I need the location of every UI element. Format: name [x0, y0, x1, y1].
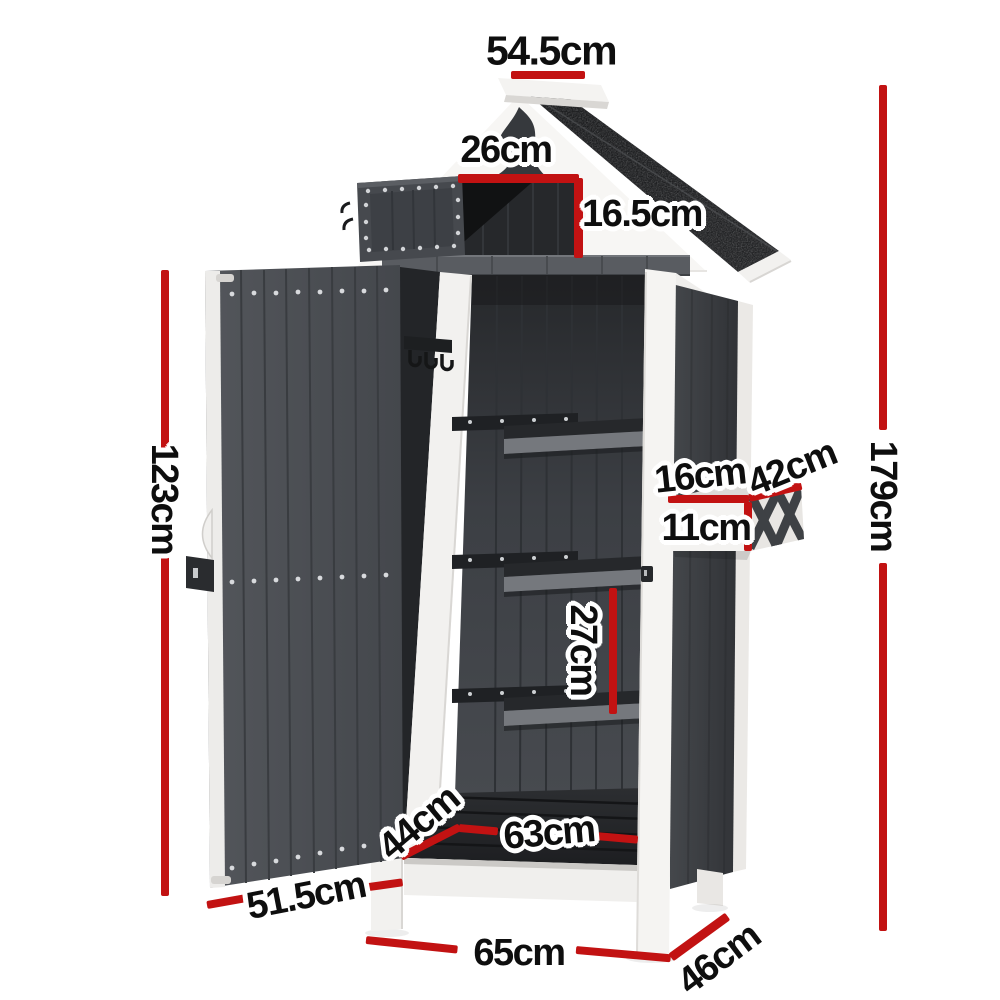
- dim-line-door-height-upper: [161, 270, 169, 452]
- dim-line-hatch-width: [458, 174, 579, 183]
- cabinet-interior: [399, 267, 650, 866]
- dim-line-shelf-spacing: [609, 588, 617, 714]
- door-corner-cap: [211, 876, 231, 884]
- door-latch: [186, 556, 214, 592]
- dim-label-base-width: 65cm: [473, 934, 564, 972]
- door-handle: [203, 510, 213, 558]
- hatch-hook-icon: [344, 219, 353, 230]
- dim-label-door-height: 123cm: [145, 444, 183, 555]
- dim-label-overall-height: 179cm: [864, 441, 902, 552]
- dim-label-planter-depth: 16cm: [653, 452, 748, 499]
- dim-line-door-height-lower: [161, 548, 169, 896]
- dim-label-hatch-height: 16.5cm: [582, 195, 702, 233]
- side-panel: [668, 283, 753, 906]
- dim-label-hatch-width: 26cm: [460, 131, 551, 169]
- dim-label-planter-height: 11cm: [661, 509, 750, 547]
- dim-label-floor-width: 63cm: [502, 810, 596, 856]
- cabinet-door: [186, 265, 403, 888]
- dim-label-shelf-spacing: 27cm: [564, 604, 602, 695]
- back-right-leg: [697, 869, 723, 906]
- dim-line-overall-height-lower: [879, 563, 887, 931]
- hatch-door: [342, 176, 465, 262]
- product-dimension-diagram: 54.5cm 26cm 16.5cm 179cm 123cm 16cm 42cm…: [0, 0, 1000, 1000]
- dim-label-roof-width: 54.5cm: [486, 31, 616, 72]
- dim-line-overall-height-upper: [879, 85, 887, 430]
- door-corner-cap: [216, 274, 234, 282]
- hatch-opening: [458, 178, 580, 257]
- hatch-hook-icon: [342, 203, 350, 213]
